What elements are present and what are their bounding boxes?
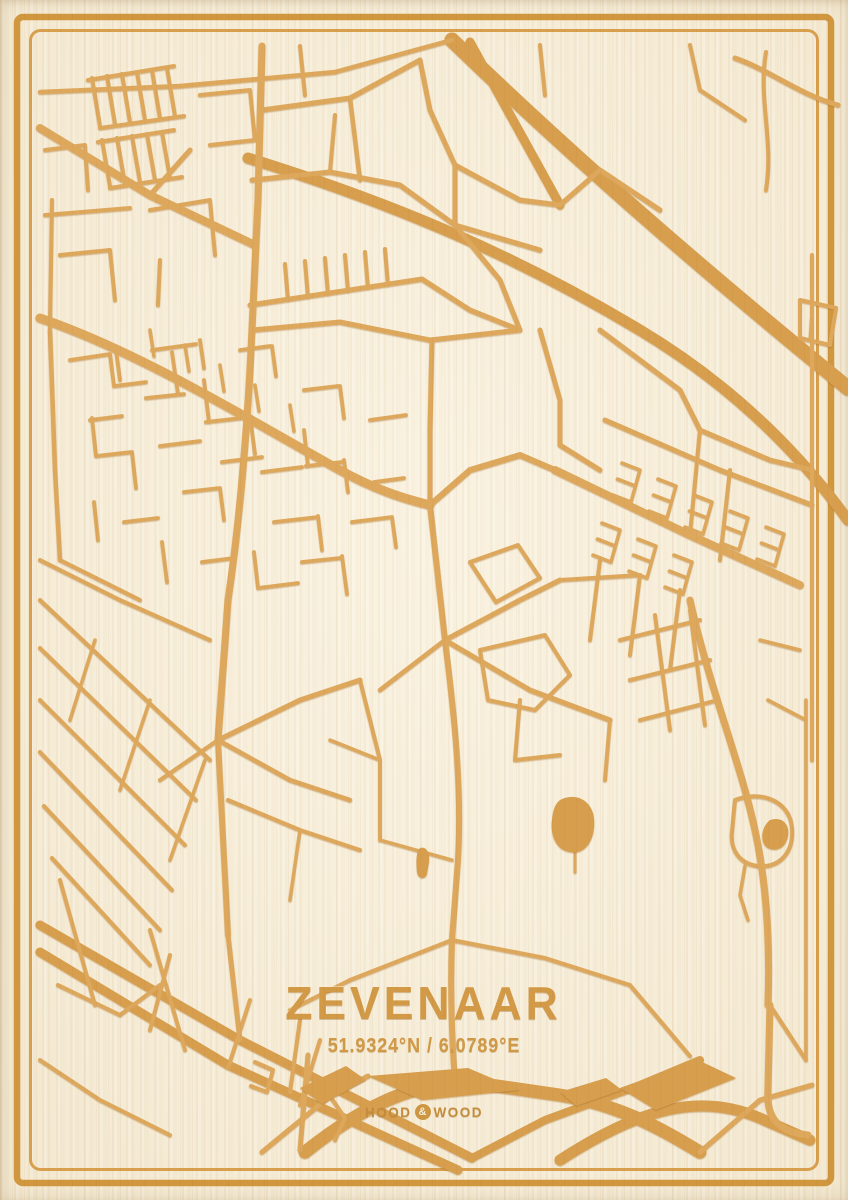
city-map-engraving: [0, 0, 848, 1200]
street-network: [40, 40, 848, 1170]
water-and-building-shapes: [300, 797, 788, 1110]
wooden-city-map-poster: ZEVENAAR 51.9324°N / 6.0789°E HOOD & WOO…: [0, 0, 848, 1200]
